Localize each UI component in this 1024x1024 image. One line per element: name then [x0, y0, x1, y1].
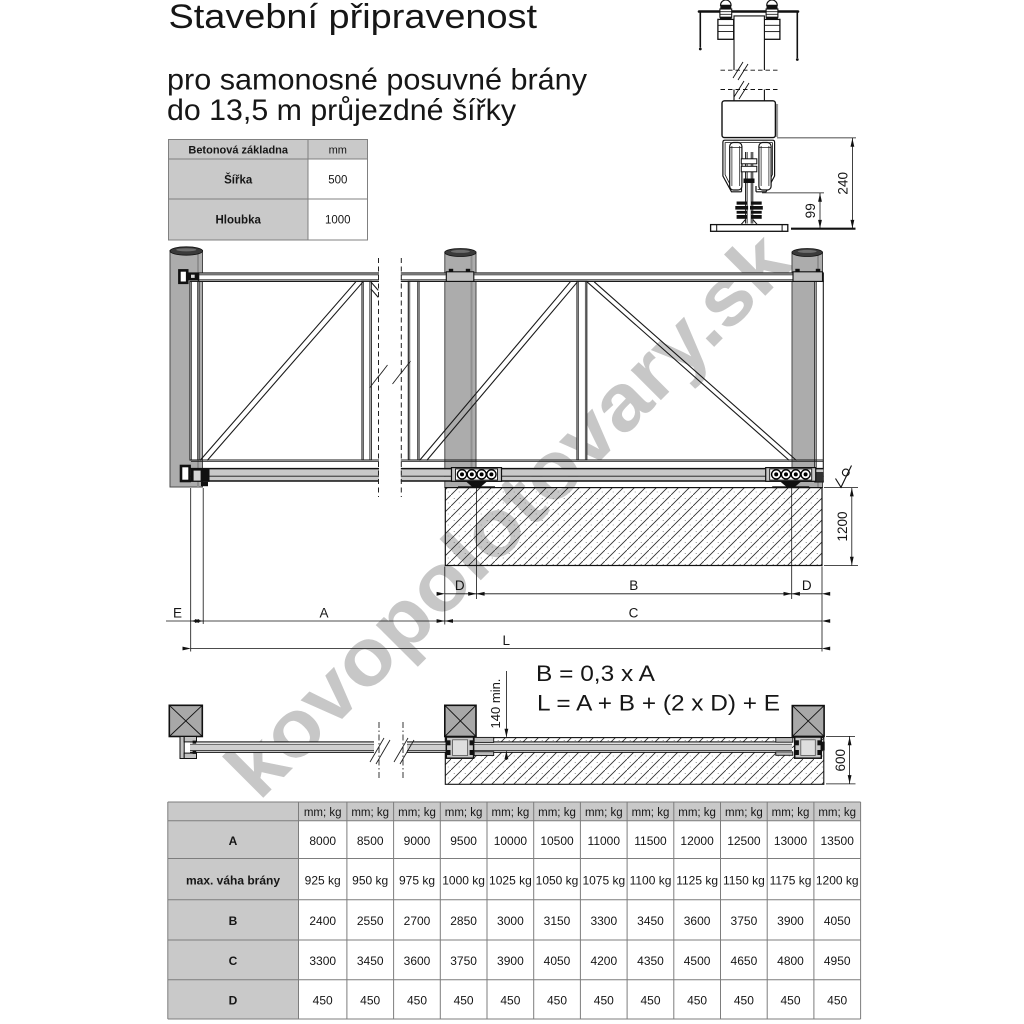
svg-text:1100 kg: 1100 kg — [630, 873, 672, 887]
svg-text:3900: 3900 — [777, 914, 804, 928]
svg-text:11000: 11000 — [588, 834, 621, 848]
svg-text:mm; kg: mm; kg — [445, 807, 483, 819]
svg-text:12500: 12500 — [727, 834, 761, 848]
svg-text:mm; kg: mm; kg — [632, 807, 670, 819]
svg-text:500: 500 — [328, 174, 347, 186]
svg-text:1125 kg: 1125 kg — [676, 873, 718, 887]
svg-text:1000 kg: 1000 kg — [442, 873, 485, 887]
svg-text:mm; kg: mm; kg — [538, 807, 576, 819]
svg-text:D: D — [802, 578, 812, 593]
svg-text:240: 240 — [836, 172, 851, 195]
svg-text:975 kg: 975 kg — [399, 873, 435, 887]
svg-text:Šířka: Šířka — [224, 173, 253, 186]
svg-text:450: 450 — [827, 994, 847, 1008]
svg-text:C: C — [629, 605, 639, 620]
svg-text:1075 kg: 1075 kg — [582, 873, 625, 887]
svg-text:450: 450 — [780, 994, 800, 1008]
svg-text:1150 kg: 1150 kg — [723, 873, 765, 887]
svg-text:B = 0,3 x A: B = 0,3 x A — [536, 661, 655, 686]
svg-text:450: 450 — [360, 994, 380, 1008]
svg-text:450: 450 — [547, 994, 567, 1008]
svg-text:10500: 10500 — [540, 834, 574, 848]
svg-text:mm; kg: mm; kg — [725, 807, 763, 819]
svg-text:925 kg: 925 kg — [305, 873, 341, 887]
svg-text:450: 450 — [500, 994, 520, 1008]
svg-text:mm; kg: mm; kg — [818, 807, 856, 819]
svg-text:3000: 3000 — [497, 914, 524, 928]
svg-text:450: 450 — [313, 994, 333, 1008]
svg-text:3750: 3750 — [450, 954, 477, 968]
svg-text:4650: 4650 — [731, 954, 758, 968]
svg-text:450: 450 — [407, 994, 427, 1008]
svg-text:L: L — [503, 633, 511, 648]
svg-text:Stavební připravenost: Stavební připravenost — [169, 0, 538, 36]
svg-text:8500: 8500 — [357, 834, 384, 848]
svg-text:3300: 3300 — [590, 914, 617, 928]
svg-text:mm; kg: mm; kg — [398, 807, 436, 819]
svg-text:1025 kg: 1025 kg — [489, 873, 532, 887]
svg-text:4950: 4950 — [824, 954, 851, 968]
svg-text:600: 600 — [833, 749, 848, 772]
svg-text:13000: 13000 — [774, 834, 808, 848]
svg-text:9500: 9500 — [450, 834, 477, 848]
svg-text:1000: 1000 — [325, 215, 351, 227]
svg-text:Betonová základna: Betonová základna — [188, 144, 289, 156]
svg-text:mm; kg: mm; kg — [304, 807, 342, 819]
svg-text:8000: 8000 — [309, 834, 336, 848]
svg-text:mm; kg: mm; kg — [772, 807, 810, 819]
svg-text:3150: 3150 — [544, 914, 571, 928]
svg-text:450: 450 — [640, 994, 660, 1008]
svg-text:1050 kg: 1050 kg — [536, 873, 579, 887]
svg-text:450: 450 — [734, 994, 754, 1008]
svg-text:3600: 3600 — [684, 914, 711, 928]
svg-text:do 13,5 m průjezdné šířky: do 13,5 m průjezdné šířky — [167, 94, 516, 127]
svg-text:max. váha brány: max. váha brány — [186, 873, 280, 887]
svg-text:mm; kg: mm; kg — [585, 807, 623, 819]
svg-text:Hloubka: Hloubka — [216, 215, 262, 227]
svg-text:1175 kg: 1175 kg — [770, 873, 812, 887]
svg-text:4200: 4200 — [590, 954, 617, 968]
svg-text:13500: 13500 — [821, 834, 855, 848]
svg-text:mm; kg: mm; kg — [678, 807, 716, 819]
svg-text:A: A — [229, 834, 238, 848]
svg-text:D: D — [455, 578, 465, 593]
svg-text:3750: 3750 — [731, 914, 758, 928]
svg-text:450: 450 — [454, 994, 474, 1008]
svg-text:4350: 4350 — [637, 954, 664, 968]
svg-text:E: E — [173, 605, 182, 620]
svg-text:3300: 3300 — [309, 954, 336, 968]
svg-text:3900: 3900 — [497, 954, 524, 968]
svg-text:D: D — [229, 994, 238, 1008]
svg-text:mm; kg: mm; kg — [351, 807, 389, 819]
svg-text:950 kg: 950 kg — [352, 873, 388, 887]
svg-text:2550: 2550 — [357, 914, 384, 928]
svg-text:L = A + B + (2 x D) + E: L = A + B + (2 x D) + E — [537, 691, 780, 716]
svg-text:9000: 9000 — [404, 834, 431, 848]
svg-text:10000: 10000 — [494, 834, 528, 848]
svg-text:mm; kg: mm; kg — [492, 807, 530, 819]
svg-text:4050: 4050 — [824, 914, 851, 928]
svg-text:4800: 4800 — [777, 954, 804, 968]
svg-text:C: C — [229, 954, 238, 968]
svg-text:1200: 1200 — [835, 511, 850, 541]
svg-text:4050: 4050 — [544, 954, 571, 968]
svg-text:11500: 11500 — [634, 834, 667, 848]
svg-text:4500: 4500 — [684, 954, 711, 968]
svg-text:450: 450 — [687, 994, 707, 1008]
svg-text:A: A — [319, 605, 328, 620]
svg-text:99: 99 — [803, 203, 818, 218]
svg-text:B: B — [629, 578, 638, 593]
svg-text:mm: mm — [329, 144, 347, 156]
svg-text:3600: 3600 — [404, 954, 431, 968]
svg-text:1200 kg: 1200 kg — [816, 873, 859, 887]
svg-text:3450: 3450 — [637, 914, 664, 928]
svg-text:140 min.: 140 min. — [488, 679, 503, 729]
svg-text:2400: 2400 — [309, 914, 336, 928]
svg-text:3450: 3450 — [357, 954, 384, 968]
svg-text:12000: 12000 — [680, 834, 714, 848]
svg-text:B: B — [229, 914, 238, 928]
svg-text:pro samonosné posuvné brány: pro samonosné posuvné brány — [167, 64, 587, 97]
svg-text:450: 450 — [594, 994, 614, 1008]
svg-text:2700: 2700 — [404, 914, 431, 928]
svg-text:2850: 2850 — [450, 914, 477, 928]
